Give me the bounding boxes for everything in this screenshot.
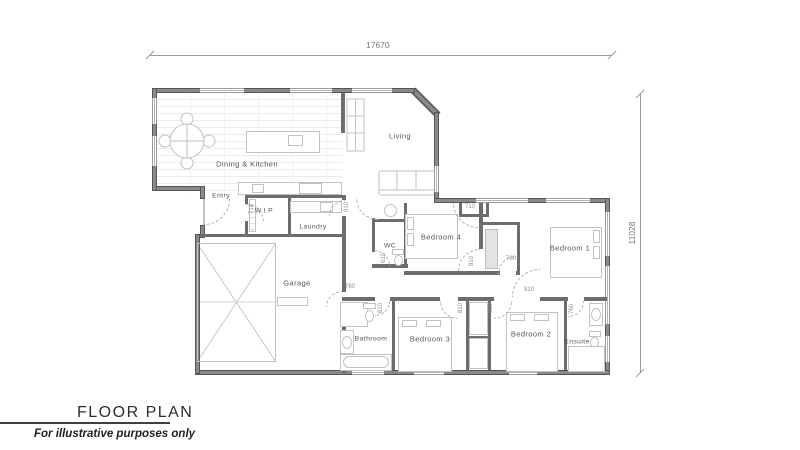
- pillow: [534, 314, 549, 321]
- wall: [517, 225, 520, 275]
- room-label-bedroom1: Bedroom 1: [550, 244, 590, 253]
- dimension-line-top: [150, 55, 612, 56]
- garage-parking-box: [197, 243, 276, 362]
- plan-detail-lines: [0, 0, 800, 450]
- ensuite-basin: [591, 308, 601, 321]
- sofa: [379, 171, 435, 195]
- walk-in-wardrobe-shelf: [485, 229, 498, 269]
- wall: [372, 218, 375, 252]
- wardrobe-closet: [469, 338, 488, 369]
- dimension-value-width: 17670: [366, 40, 390, 50]
- wall: [152, 186, 205, 191]
- pillow: [510, 314, 525, 321]
- room-label-entry: Entry: [212, 193, 230, 200]
- wall: [342, 216, 346, 292]
- wall: [479, 203, 483, 249]
- wall: [564, 301, 567, 370]
- bathroom-basin: [342, 336, 352, 349]
- window: [605, 336, 610, 362]
- pillow: [426, 320, 441, 327]
- wall: [374, 219, 405, 222]
- floor-plan-drawing: Dining & Kitchen Living Entry W.I.P Laun…: [0, 0, 800, 450]
- door-dim-ensuite: 760: [569, 304, 575, 314]
- wardrobe-closet: [469, 302, 488, 335]
- title-underline: [0, 422, 170, 424]
- kitchen-island: [246, 131, 320, 153]
- window: [605, 212, 610, 256]
- wall: [483, 222, 520, 225]
- window: [290, 88, 332, 93]
- wall: [341, 93, 345, 133]
- pillow: [593, 230, 600, 243]
- window: [152, 98, 157, 124]
- garage-door-motor: [277, 297, 308, 306]
- dining-table: [159, 113, 215, 169]
- wall: [392, 301, 395, 370]
- bed-bedroom2: [506, 312, 558, 372]
- pillow: [407, 233, 414, 246]
- door-dim-bedroom1: 810: [524, 287, 534, 293]
- dimension-line-right: [640, 94, 641, 373]
- window: [476, 198, 528, 203]
- door-dim-laundry: 810: [344, 202, 350, 212]
- room-label-ensuite: Ensuite: [564, 339, 589, 346]
- wall: [245, 195, 345, 198]
- window: [200, 88, 244, 93]
- wall: [200, 234, 346, 237]
- page-title: FLOOR PLAN: [77, 404, 193, 422]
- page-subtitle: For illustrative purposes only: [34, 428, 195, 440]
- door-dim-linen: 710: [465, 204, 475, 210]
- wall: [390, 297, 440, 301]
- dimension-value-height: 11028: [627, 213, 637, 253]
- stove: [299, 183, 322, 194]
- room-label-bedroom3: Bedroom 3: [410, 335, 450, 344]
- kitchen-sink: [252, 184, 264, 193]
- door-dim-bedroom3: 810: [458, 303, 464, 313]
- door-dim-bedroom4: 810: [469, 256, 475, 266]
- door-dim-bathroom: 610: [378, 303, 384, 313]
- window: [152, 136, 157, 166]
- island-sink: [288, 135, 303, 146]
- room-label-dining-kitchen: Dining & Kitchen: [216, 160, 278, 169]
- window: [434, 166, 439, 192]
- door-dim-wc: 610: [381, 253, 387, 263]
- door-dim-garage: 760: [345, 284, 355, 290]
- door-dim-bedroom2: 810: [488, 303, 494, 313]
- wc-toilet-bowl: [394, 255, 403, 266]
- window: [546, 198, 590, 203]
- pillow: [402, 320, 417, 327]
- room-label-bedroom4: Bedroom 4: [421, 233, 461, 242]
- room-label-bedroom2: Bedroom 2: [511, 330, 551, 339]
- pillow: [593, 246, 600, 259]
- door-dim-wardrobe: 760: [506, 256, 516, 262]
- wall: [584, 297, 607, 301]
- wc-basin: [384, 204, 397, 217]
- room-label-bathroom: Bathroom: [355, 336, 388, 343]
- room-label-garage: Garage: [283, 279, 310, 288]
- bathtub-inner: [343, 356, 389, 368]
- wall: [200, 186, 205, 199]
- ensuite-shower: [568, 346, 605, 372]
- room-label-wc: WC: [384, 243, 396, 250]
- window: [352, 88, 392, 93]
- room-label-wip: W.I.P: [255, 208, 273, 215]
- door-dim-wip: 710: [249, 204, 255, 214]
- window: [605, 266, 610, 324]
- room-label-laundry: Laundry: [299, 224, 326, 231]
- wall: [342, 297, 375, 301]
- room-label-living: Living: [389, 132, 411, 141]
- bathroom-toilet-bowl: [365, 310, 374, 322]
- pillow: [407, 217, 414, 230]
- wall: [404, 271, 500, 275]
- shelving-cabinet: [347, 99, 364, 151]
